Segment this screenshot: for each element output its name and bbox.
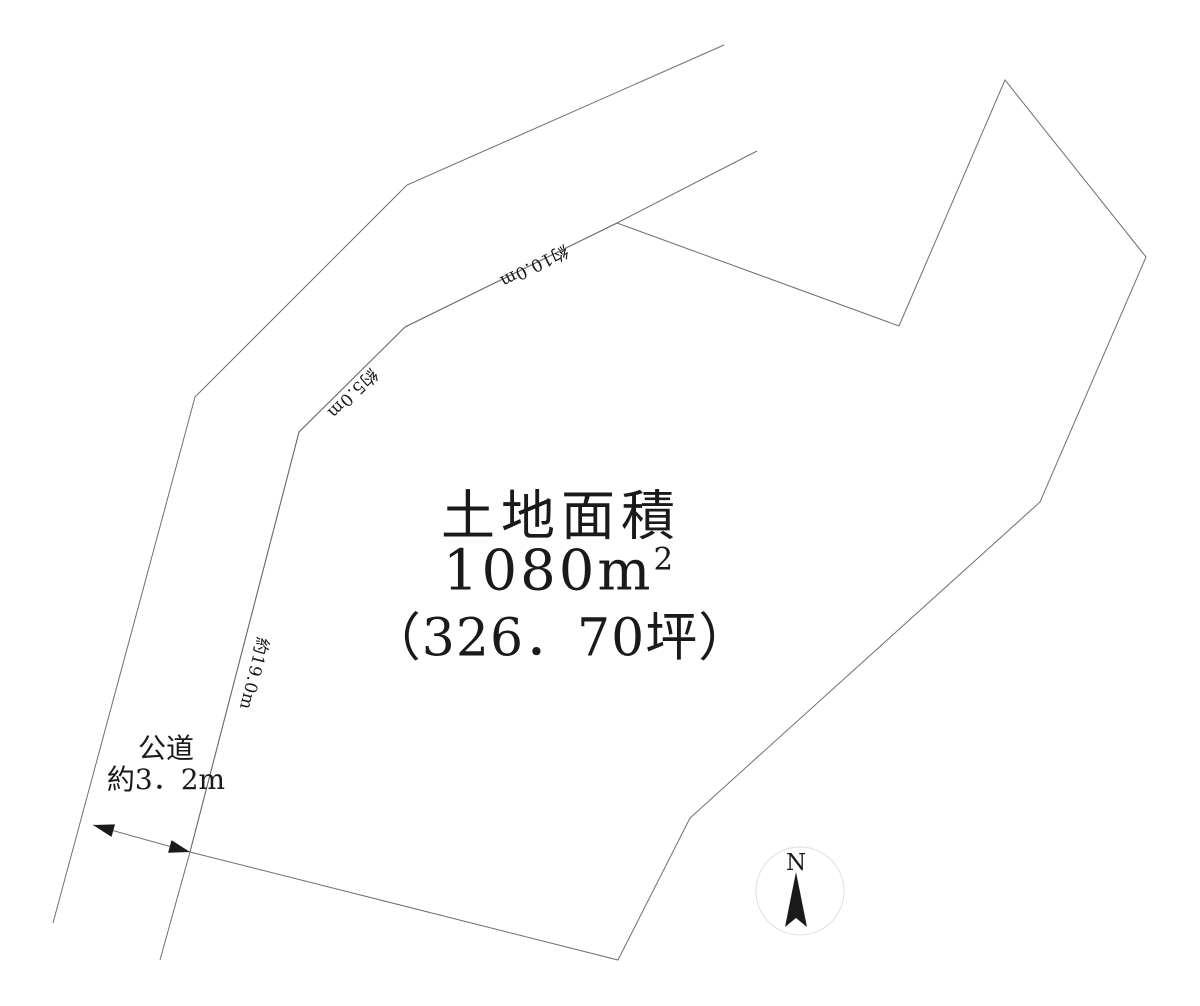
north-arrow-icon	[785, 872, 807, 927]
road-label-block: 公道 約3．2m	[107, 733, 225, 795]
dimension-arrowhead-right-icon	[168, 840, 190, 853]
land-area-value: 1080m2	[443, 539, 673, 604]
land-area-tsubo: （326．70坪）	[369, 596, 751, 671]
road-name-label: 公道	[107, 733, 225, 764]
land-plot-diagram: N 土地面積 1080m2 （326．70坪） 約10.0m 約5.0m 約19…	[0, 0, 1200, 1006]
compass-north-indicator: N	[756, 847, 844, 935]
land-area-number: 1080	[443, 539, 598, 604]
land-area-unit: m	[597, 539, 653, 604]
north-label: N	[786, 850, 806, 876]
dimension-arrowhead-left-icon	[93, 824, 115, 837]
road-width-label: 約3．2m	[107, 764, 225, 795]
land-area-unit-exponent: 2	[654, 541, 674, 577]
